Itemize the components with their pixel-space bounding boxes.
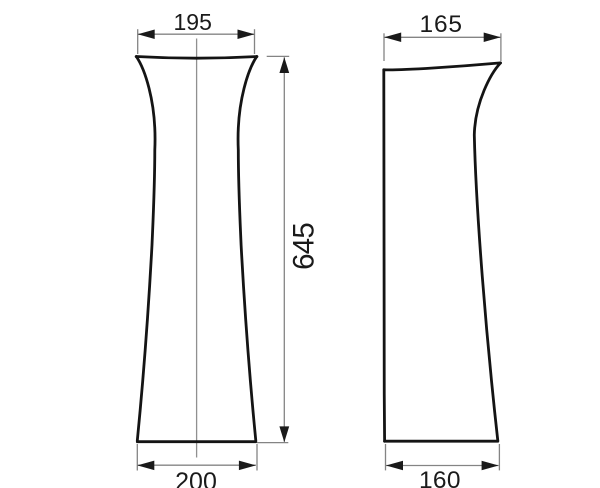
svg-text:160: 160 [419,467,461,488]
svg-text:165: 165 [420,11,463,38]
svg-text:200: 200 [175,468,217,488]
svg-text:645: 645 [288,223,321,270]
svg-text:195: 195 [174,9,212,35]
